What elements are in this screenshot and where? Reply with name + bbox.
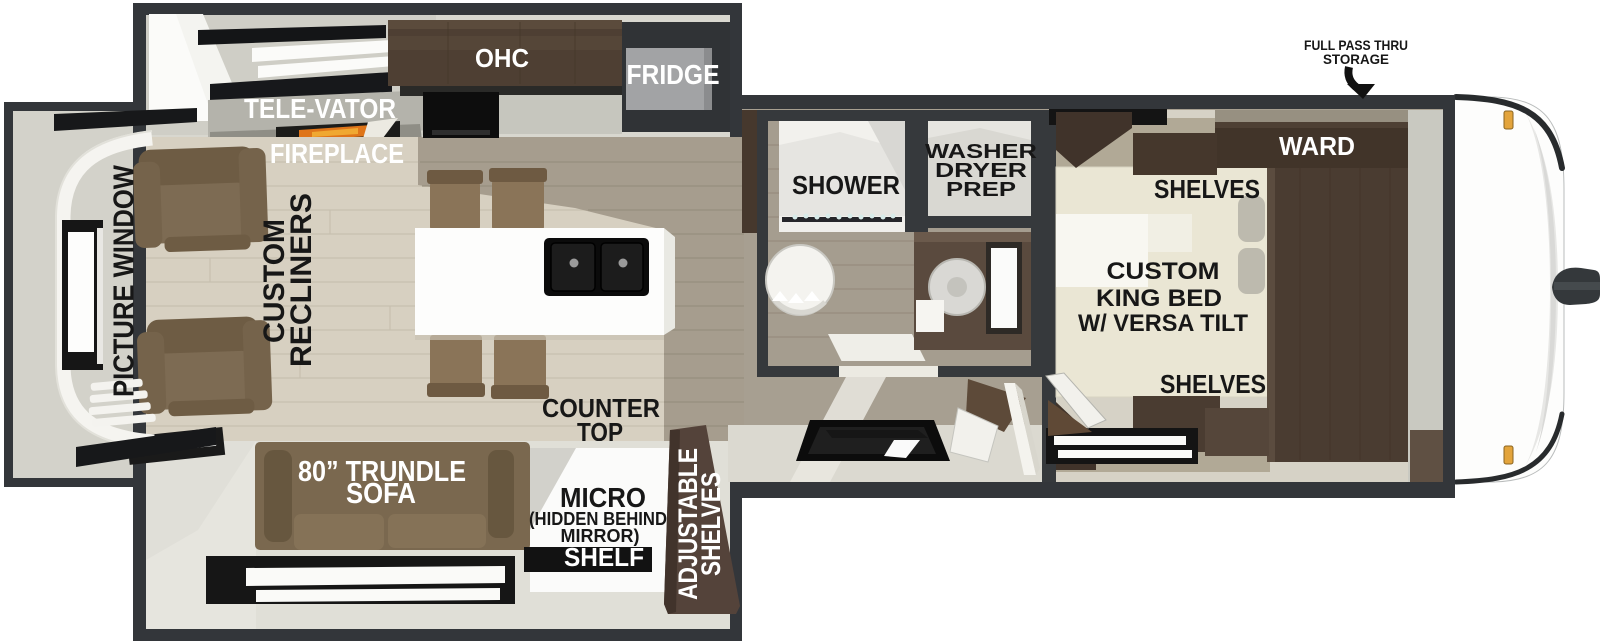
svg-text:RECLINERS: RECLINERS bbox=[285, 193, 318, 367]
svg-text:KING BED: KING BED bbox=[1096, 285, 1222, 312]
svg-text:SHELF: SHELF bbox=[564, 542, 644, 572]
svg-text:FRIDGE: FRIDGE bbox=[627, 59, 720, 90]
svg-text:SHELVES: SHELVES bbox=[1160, 369, 1266, 399]
svg-text:SHELVES: SHELVES bbox=[1154, 174, 1260, 204]
svg-text:TELE-VATOR: TELE-VATOR bbox=[244, 93, 396, 124]
svg-text:OHC: OHC bbox=[475, 43, 529, 73]
svg-text:STORAGE: STORAGE bbox=[1323, 51, 1389, 67]
svg-text:PICTURE WINDOW: PICTURE WINDOW bbox=[109, 164, 141, 397]
svg-text:PREP: PREP bbox=[946, 179, 1016, 201]
svg-text:FIREPLACE: FIREPLACE bbox=[270, 138, 404, 169]
svg-text:WARD: WARD bbox=[1279, 131, 1355, 161]
svg-text:W/ VERSA TILT: W/ VERSA TILT bbox=[1078, 310, 1248, 337]
svg-text:CUSTOM: CUSTOM bbox=[1107, 258, 1220, 285]
svg-text:SHOWER: SHOWER bbox=[792, 170, 900, 200]
svg-text:SHELVES: SHELVES bbox=[696, 472, 726, 576]
svg-text:SOFA: SOFA bbox=[346, 478, 416, 510]
